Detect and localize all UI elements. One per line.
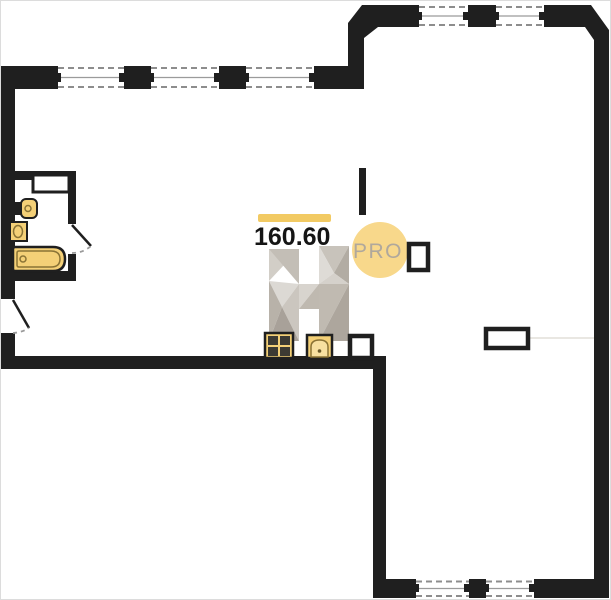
stove-icon <box>265 333 293 358</box>
floorplan-svg: 160.60 PRO <box>1 1 610 599</box>
window <box>494 5 544 27</box>
window <box>149 66 219 89</box>
hall-vent-shaft <box>409 244 428 270</box>
kitchen-vent-shaft <box>350 336 372 358</box>
kitchen-fixtures <box>265 333 372 358</box>
area-value: 160.60 <box>254 223 330 251</box>
floorplan-page: 160.60 PRO <box>0 0 611 600</box>
area-accent-bar <box>258 214 331 222</box>
washing-machine-niche <box>33 175 69 192</box>
window <box>484 579 534 598</box>
window <box>417 5 468 27</box>
pro-badge-label: PRO <box>353 240 403 263</box>
wall-niche <box>486 329 528 348</box>
pro-badge: PRO <box>352 222 408 278</box>
oven-icon <box>307 335 332 358</box>
window <box>244 66 314 89</box>
sink-icon <box>10 222 27 241</box>
window <box>56 66 124 89</box>
bathtub-icon <box>13 247 65 271</box>
windows-top-left-wall <box>56 66 314 89</box>
window <box>414 579 469 598</box>
area-label: 160.60 <box>254 214 331 251</box>
bathroom-bottom-wall <box>11 271 76 281</box>
partition-stub-wall <box>359 168 366 215</box>
